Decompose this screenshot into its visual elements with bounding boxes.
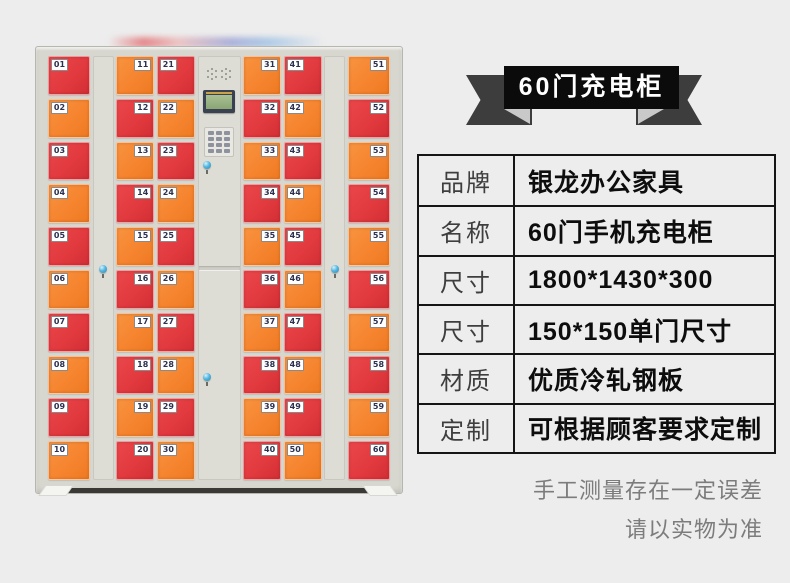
door-number-label: 59 (370, 401, 387, 413)
door-number-label: 02 (51, 102, 68, 114)
locker-door-04: 04 (48, 184, 90, 223)
door-number-label: 40 (261, 444, 278, 456)
keypad-key (224, 143, 230, 147)
keypad-key (208, 143, 214, 147)
locker-door-29: 29 (157, 398, 195, 437)
locker-door-18: 18 (116, 356, 154, 395)
door-number-label: 47 (287, 316, 304, 328)
door-number-label: 33 (261, 145, 278, 157)
door-column-31-40: 31323334353637383940 (243, 56, 281, 480)
speaker-grille-icon (205, 65, 233, 83)
locker-door-24: 24 (157, 184, 195, 223)
door-number-label: 29 (160, 401, 177, 413)
spec-row-custom: 定制 可根据顾客要求定制 (419, 403, 774, 452)
keypad-key (224, 131, 230, 135)
door-number-label: 34 (261, 187, 278, 199)
door-number-label: 30 (160, 444, 177, 456)
door-number-label: 22 (160, 102, 177, 114)
spec-table: 品牌 银龙办公家具 名称 60门手机充电柜 尺寸 1800*1430*300 尺… (417, 154, 776, 454)
door-number-label: 56 (370, 273, 387, 285)
locker-door-59: 59 (348, 398, 390, 437)
keypad-key (216, 137, 222, 141)
locker-door-17: 17 (116, 313, 154, 352)
spec-row-brand: 品牌 银龙办公家具 (419, 156, 774, 205)
door-column-01-10: 01020304050607080910 (48, 56, 90, 480)
door-number-label: 28 (160, 359, 177, 371)
locker-door-10: 10 (48, 441, 90, 480)
door-number-label: 13 (134, 145, 151, 157)
door-number-label: 44 (287, 187, 304, 199)
locker-door-11: 11 (116, 56, 154, 95)
cabinet-shadow (66, 488, 368, 493)
locker-door-43: 43 (284, 142, 322, 181)
door-number-label: 03 (51, 145, 68, 157)
locker-door-31: 31 (243, 56, 281, 95)
side-panel-left (93, 56, 114, 480)
disclaimer-text: 手工测量存在一定误差 请以实物为准 (533, 471, 763, 549)
door-number-label: 36 (261, 273, 278, 285)
locker-door-36: 36 (243, 270, 281, 309)
locker-door-06: 06 (48, 270, 90, 309)
keypad (204, 127, 234, 157)
lock-icon (331, 265, 339, 279)
locker-door-21: 21 (157, 56, 195, 95)
door-number-label: 41 (287, 59, 304, 71)
door-column-41-50: 41424344454647484950 (284, 56, 322, 480)
locker-door-07: 07 (48, 313, 90, 352)
locker-door-60: 60 (348, 441, 390, 480)
locker-door-44: 44 (284, 184, 322, 223)
charging-cabinet-photo: 01020304050607080910 1112131415161718192… (35, 46, 403, 494)
door-number-label: 51 (370, 59, 387, 71)
keypad-key (208, 131, 214, 135)
spec-value: 150*150单门尺寸 (515, 306, 774, 353)
door-number-label: 50 (287, 444, 304, 456)
door-number-label: 46 (287, 273, 304, 285)
locker-door-47: 47 (284, 313, 322, 352)
door-number-label: 18 (134, 359, 151, 371)
door-number-label: 16 (134, 273, 151, 285)
locker-door-50: 50 (284, 441, 322, 480)
keypad-key (216, 149, 222, 153)
keypad-key (216, 143, 222, 147)
locker-door-27: 27 (157, 313, 195, 352)
door-number-label: 42 (287, 102, 304, 114)
locker-door-23: 23 (157, 142, 195, 181)
lock-icon (99, 265, 107, 279)
keypad-key (216, 131, 222, 135)
door-number-label: 53 (370, 145, 387, 157)
spec-value: 可根据顾客要求定制 (515, 405, 774, 452)
spec-value: 1800*1430*300 (515, 257, 774, 304)
door-number-label: 01 (51, 59, 68, 71)
spec-row-material: 材质 优质冷轧钢板 (419, 353, 774, 402)
door-number-label: 20 (134, 444, 151, 456)
keypad-key (208, 137, 214, 141)
locker-door-56: 56 (348, 270, 390, 309)
locker-door-26: 26 (157, 270, 195, 309)
door-number-label: 09 (51, 401, 68, 413)
locker-door-55: 55 (348, 227, 390, 266)
keypad-key (224, 137, 230, 141)
control-panel (198, 56, 241, 480)
product-title: 60门充电柜 (504, 66, 679, 109)
door-number-label: 45 (287, 230, 304, 242)
disclaimer-line-1: 手工测量存在一定误差 (533, 471, 763, 510)
locker-door-45: 45 (284, 227, 322, 266)
door-column-21-30: 21222324252627282930 (157, 56, 195, 480)
door-number-label: 32 (261, 102, 278, 114)
locker-door-15: 15 (116, 227, 154, 266)
locker-door-22: 22 (157, 99, 195, 138)
door-number-label: 14 (134, 187, 151, 199)
disclaimer-line-2: 请以实物为准 (533, 510, 763, 549)
door-number-label: 05 (51, 230, 68, 242)
locker-door-52: 52 (348, 99, 390, 138)
locker-door-49: 49 (284, 398, 322, 437)
locker-door-16: 16 (116, 270, 154, 309)
door-number-label: 60 (370, 444, 387, 456)
door-number-label: 11 (134, 59, 151, 71)
door-number-label: 26 (160, 273, 177, 285)
door-number-label: 24 (160, 187, 177, 199)
keypad-key (224, 149, 230, 153)
locker-door-01: 01 (48, 56, 90, 95)
door-number-label: 55 (370, 230, 387, 242)
locker-door-54: 54 (348, 184, 390, 223)
locker-door-14: 14 (116, 184, 154, 223)
door-number-label: 04 (51, 187, 68, 199)
locker-door-46: 46 (284, 270, 322, 309)
locker-door-38: 38 (243, 356, 281, 395)
door-number-label: 10 (51, 444, 68, 456)
door-number-label: 15 (134, 230, 151, 242)
locker-door-32: 32 (243, 99, 281, 138)
locker-door-19: 19 (116, 398, 154, 437)
spec-value: 60门手机充电柜 (515, 207, 774, 254)
door-number-label: 48 (287, 359, 304, 371)
locker-door-03: 03 (48, 142, 90, 181)
spec-label: 名称 (419, 207, 515, 254)
door-number-label: 31 (261, 59, 278, 71)
locker-door-48: 48 (284, 356, 322, 395)
door-number-label: 38 (261, 359, 278, 371)
door-number-label: 21 (160, 59, 177, 71)
door-number-label: 35 (261, 230, 278, 242)
spec-label: 品牌 (419, 156, 515, 205)
door-number-label: 43 (287, 145, 304, 157)
spec-row-size: 尺寸 1800*1430*300 (419, 255, 774, 304)
cabinet-columns: 01020304050607080910 1112131415161718192… (48, 56, 390, 480)
door-column-11-20: 11121314151617181920 (116, 56, 154, 480)
spec-label: 尺寸 (419, 306, 515, 353)
spec-value: 优质冷轧钢板 (515, 355, 774, 402)
spec-label: 尺寸 (419, 257, 515, 304)
locker-door-57: 57 (348, 313, 390, 352)
locker-door-41: 41 (284, 56, 322, 95)
spec-label: 材质 (419, 355, 515, 402)
locker-door-20: 20 (116, 441, 154, 480)
locker-door-34: 34 (243, 184, 281, 223)
lcd-screen (203, 90, 235, 113)
locker-door-05: 05 (48, 227, 90, 266)
door-number-label: 57 (370, 316, 387, 328)
locker-door-02: 02 (48, 99, 90, 138)
locker-door-33: 33 (243, 142, 281, 181)
door-number-label: 19 (134, 401, 151, 413)
product-detail-image: 01020304050607080910 1112131415161718192… (0, 0, 790, 583)
locker-door-12: 12 (116, 99, 154, 138)
locker-door-28: 28 (157, 356, 195, 395)
lock-icon (203, 161, 211, 175)
spec-row-name: 名称 60门手机充电柜 (419, 205, 774, 254)
cabinet-foot-left (38, 485, 74, 496)
locker-door-40: 40 (243, 441, 281, 480)
locker-door-51: 51 (348, 56, 390, 95)
locker-door-53: 53 (348, 142, 390, 181)
door-number-label: 54 (370, 187, 387, 199)
locker-door-09: 09 (48, 398, 90, 437)
side-panel-right (324, 56, 345, 480)
door-number-label: 37 (261, 316, 278, 328)
locker-door-37: 37 (243, 313, 281, 352)
locker-door-35: 35 (243, 227, 281, 266)
door-number-label: 52 (370, 102, 387, 114)
locker-door-13: 13 (116, 142, 154, 181)
door-number-label: 07 (51, 316, 68, 328)
title-ribbon: 60门充电柜 (458, 61, 710, 133)
door-number-label: 58 (370, 359, 387, 371)
door-number-label: 49 (287, 401, 304, 413)
door-number-label: 06 (51, 273, 68, 285)
spec-value: 银龙办公家具 (515, 156, 774, 205)
door-number-label: 25 (160, 230, 177, 242)
spec-row-door-size: 尺寸 150*150单门尺寸 (419, 304, 774, 353)
door-number-label: 12 (134, 102, 151, 114)
lock-icon (203, 373, 211, 387)
door-number-label: 39 (261, 401, 278, 413)
locker-door-42: 42 (284, 99, 322, 138)
door-number-label: 17 (134, 316, 151, 328)
door-number-label: 23 (160, 145, 177, 157)
door-number-label: 27 (160, 316, 177, 328)
locker-door-30: 30 (157, 441, 195, 480)
locker-door-39: 39 (243, 398, 281, 437)
panel-seam (199, 266, 240, 271)
locker-door-25: 25 (157, 227, 195, 266)
locker-door-58: 58 (348, 356, 390, 395)
locker-door-08: 08 (48, 356, 90, 395)
door-column-51-60: 51525354555657585960 (348, 56, 390, 480)
spec-label: 定制 (419, 405, 515, 452)
keypad-key (208, 149, 214, 153)
door-number-label: 08 (51, 359, 68, 371)
